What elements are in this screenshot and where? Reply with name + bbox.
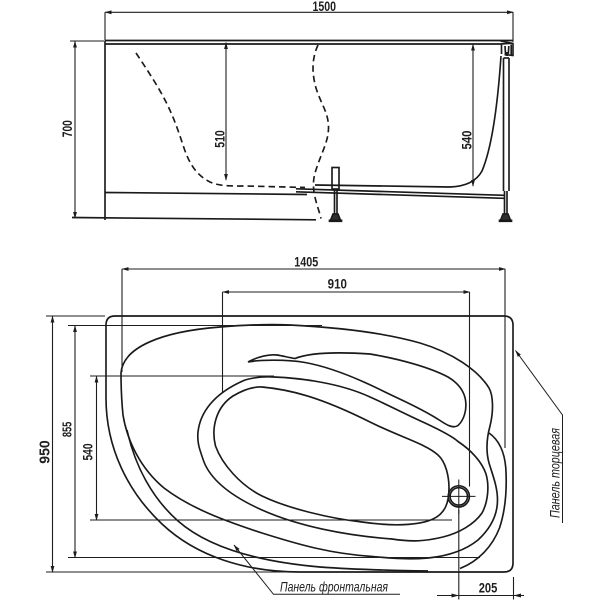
svg-text:855: 855 (60, 422, 75, 438)
svg-text:Панель торцевая: Панель торцевая (547, 428, 563, 518)
svg-text:205: 205 (479, 581, 498, 596)
svg-text:1500: 1500 (313, 0, 337, 14)
svg-text:950: 950 (38, 440, 54, 464)
svg-text:540: 540 (81, 444, 96, 461)
svg-text:910: 910 (328, 277, 347, 292)
svg-text:700: 700 (60, 120, 75, 137)
svg-text:Панель фронтальная: Панель фронтальная (280, 579, 388, 595)
svg-text:540: 540 (460, 131, 475, 150)
svg-text:510: 510 (213, 130, 228, 148)
svg-text:1405: 1405 (294, 255, 318, 270)
